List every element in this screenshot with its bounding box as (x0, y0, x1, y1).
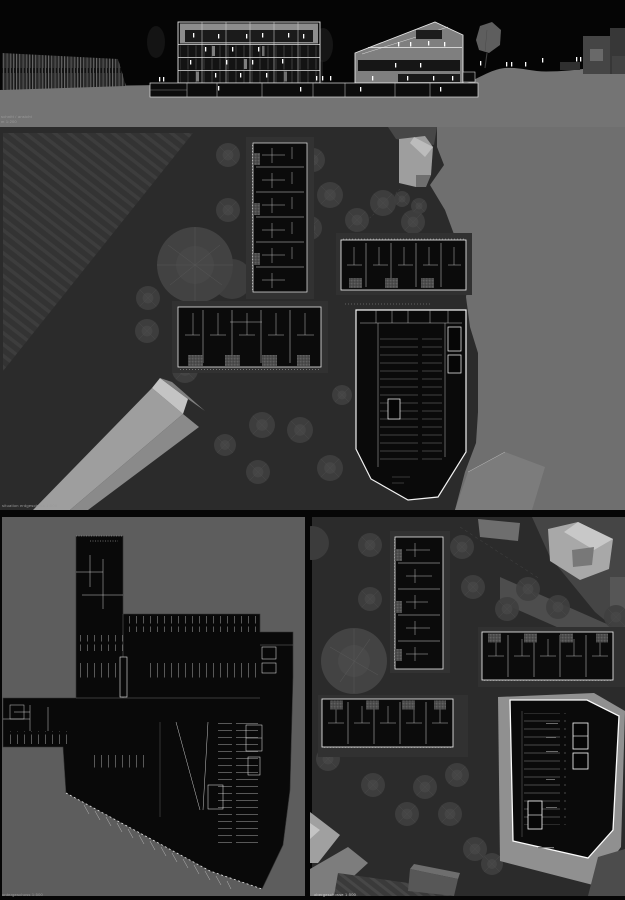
person-figure (452, 76, 453, 81)
tree (135, 319, 159, 343)
person-figure (252, 60, 253, 65)
caption-site-plan: situation erdgeschoss 1:500 (2, 504, 57, 509)
person-figure (407, 76, 408, 81)
person-figure (159, 77, 160, 82)
tree (461, 575, 485, 599)
person-figure (190, 60, 191, 65)
community-building-plan-upper (510, 700, 619, 858)
person-figure (360, 87, 361, 92)
person-figure (232, 47, 233, 52)
person-figure (444, 42, 445, 47)
tree (287, 417, 313, 443)
person-figure (428, 41, 429, 46)
tree (317, 182, 343, 208)
person-figure (258, 47, 259, 52)
person-figure (580, 57, 581, 62)
apartment-building-plan-upper-2 (482, 632, 613, 681)
tree (370, 190, 396, 216)
apartment-building-plan-upper-1 (395, 537, 444, 669)
tree (546, 595, 570, 619)
person-figure (300, 87, 301, 92)
tree (345, 208, 369, 232)
building-a-section (178, 22, 320, 83)
tree (395, 802, 419, 826)
person-figure (542, 58, 543, 63)
caption-lower-right: obergeschosse 1:500 (314, 893, 356, 898)
person-figure (288, 33, 289, 38)
person-figure (330, 76, 331, 81)
competition-board: { "header": { "title": "ideen- und reali… (0, 0, 625, 900)
tree (246, 460, 270, 484)
tree (438, 802, 462, 826)
tree (332, 385, 352, 405)
person-figure (440, 87, 441, 92)
underground-garage-panel (0, 517, 305, 898)
person-figure (262, 33, 263, 38)
tree (216, 198, 240, 222)
tree (358, 587, 382, 611)
person-figure (246, 34, 247, 39)
person-figure (372, 76, 373, 81)
person-figure (576, 57, 577, 62)
tree (481, 853, 503, 875)
tree (450, 535, 474, 559)
apartment-building-plan-3 (178, 307, 321, 370)
person-figure (433, 76, 434, 81)
person-figure (395, 63, 396, 68)
tree (249, 412, 275, 438)
person-figure (205, 47, 206, 52)
tree (361, 773, 385, 797)
upper-floor-site-plan-panel (310, 517, 625, 898)
tree (394, 191, 410, 207)
existing-building-topright (399, 136, 433, 187)
person-figure (303, 34, 304, 39)
apartment-building-plan-upper-3 (322, 699, 453, 748)
caption-section: schnitt / ansicht m 1:200 (1, 115, 32, 124)
tree (358, 533, 382, 557)
person-figure (218, 34, 219, 39)
apartment-building-plan-2 (341, 239, 466, 290)
person-figure (480, 61, 481, 66)
tree (216, 143, 240, 167)
tree (136, 286, 160, 310)
tree (413, 775, 437, 799)
person-figure (218, 86, 219, 91)
person-figure (163, 77, 164, 82)
person-figure (215, 73, 216, 78)
person-figure (398, 42, 399, 47)
person-figure (226, 60, 227, 65)
apartment-building-plan-1 (252, 143, 307, 292)
tree (445, 763, 469, 787)
person-figure (525, 62, 526, 67)
site-plan-drawing (0, 127, 625, 510)
tree-silhouette-left (147, 26, 165, 58)
forest-hatch (2, 53, 126, 90)
community-building-plan (356, 310, 466, 500)
person-figure (282, 59, 283, 64)
person-figure (316, 76, 317, 81)
basement-level-section (150, 83, 478, 97)
caption-lower-left: untergeschoss 1:500 (2, 893, 43, 898)
person-figure (322, 76, 323, 81)
person-figure (420, 63, 421, 68)
person-figure (266, 73, 267, 78)
elevation-section-drawing (0, 0, 625, 127)
tree (317, 455, 343, 481)
tree (516, 577, 540, 601)
tree (411, 198, 427, 214)
person-figure (240, 73, 241, 78)
person-figure (410, 42, 411, 47)
person-figure (506, 62, 507, 67)
caption-section-line2: m 1:200 (1, 120, 32, 125)
person-figure (511, 62, 512, 67)
tree (214, 434, 236, 456)
tree (495, 597, 519, 621)
person-figure (193, 33, 194, 38)
